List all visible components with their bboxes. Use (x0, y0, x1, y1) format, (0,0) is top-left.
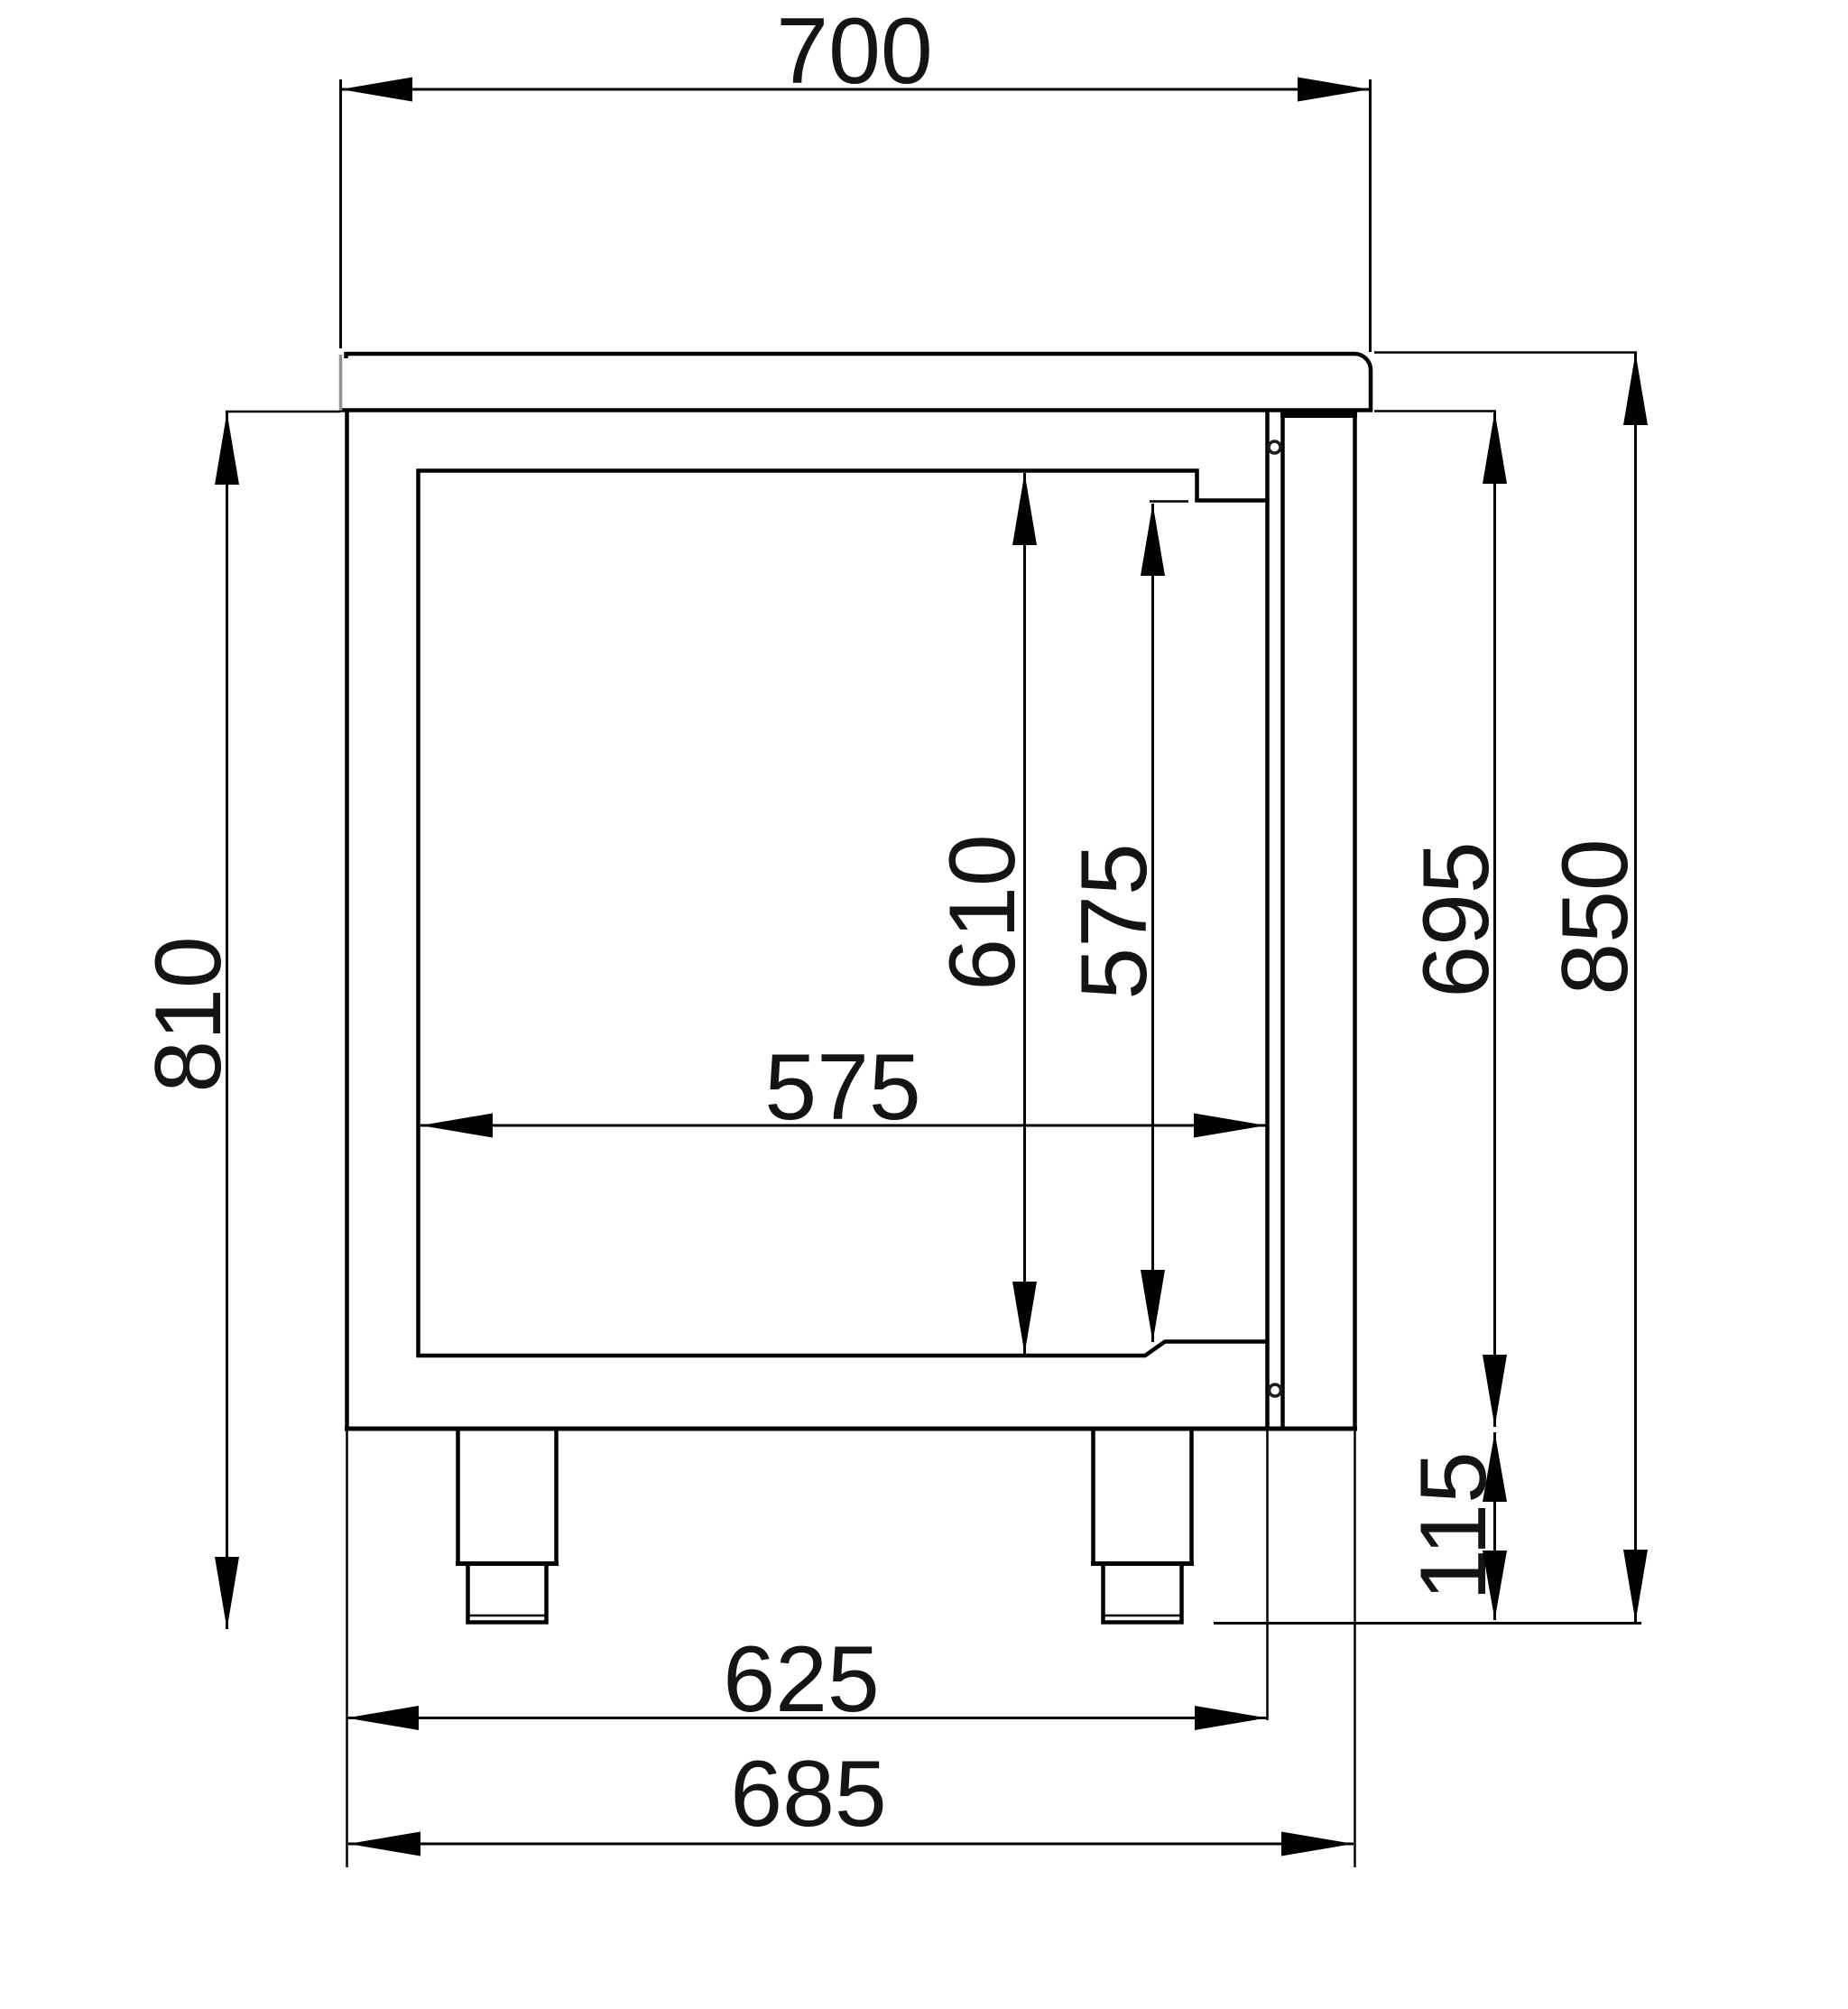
svg-text:575: 575 (1062, 843, 1167, 1000)
svg-text:850: 850 (1543, 838, 1648, 995)
svg-text:810: 810 (136, 936, 241, 1093)
svg-text:695: 695 (1404, 841, 1509, 998)
svg-text:625: 625 (723, 1627, 880, 1732)
svg-text:610: 610 (930, 834, 1035, 991)
svg-text:685: 685 (730, 1742, 887, 1847)
